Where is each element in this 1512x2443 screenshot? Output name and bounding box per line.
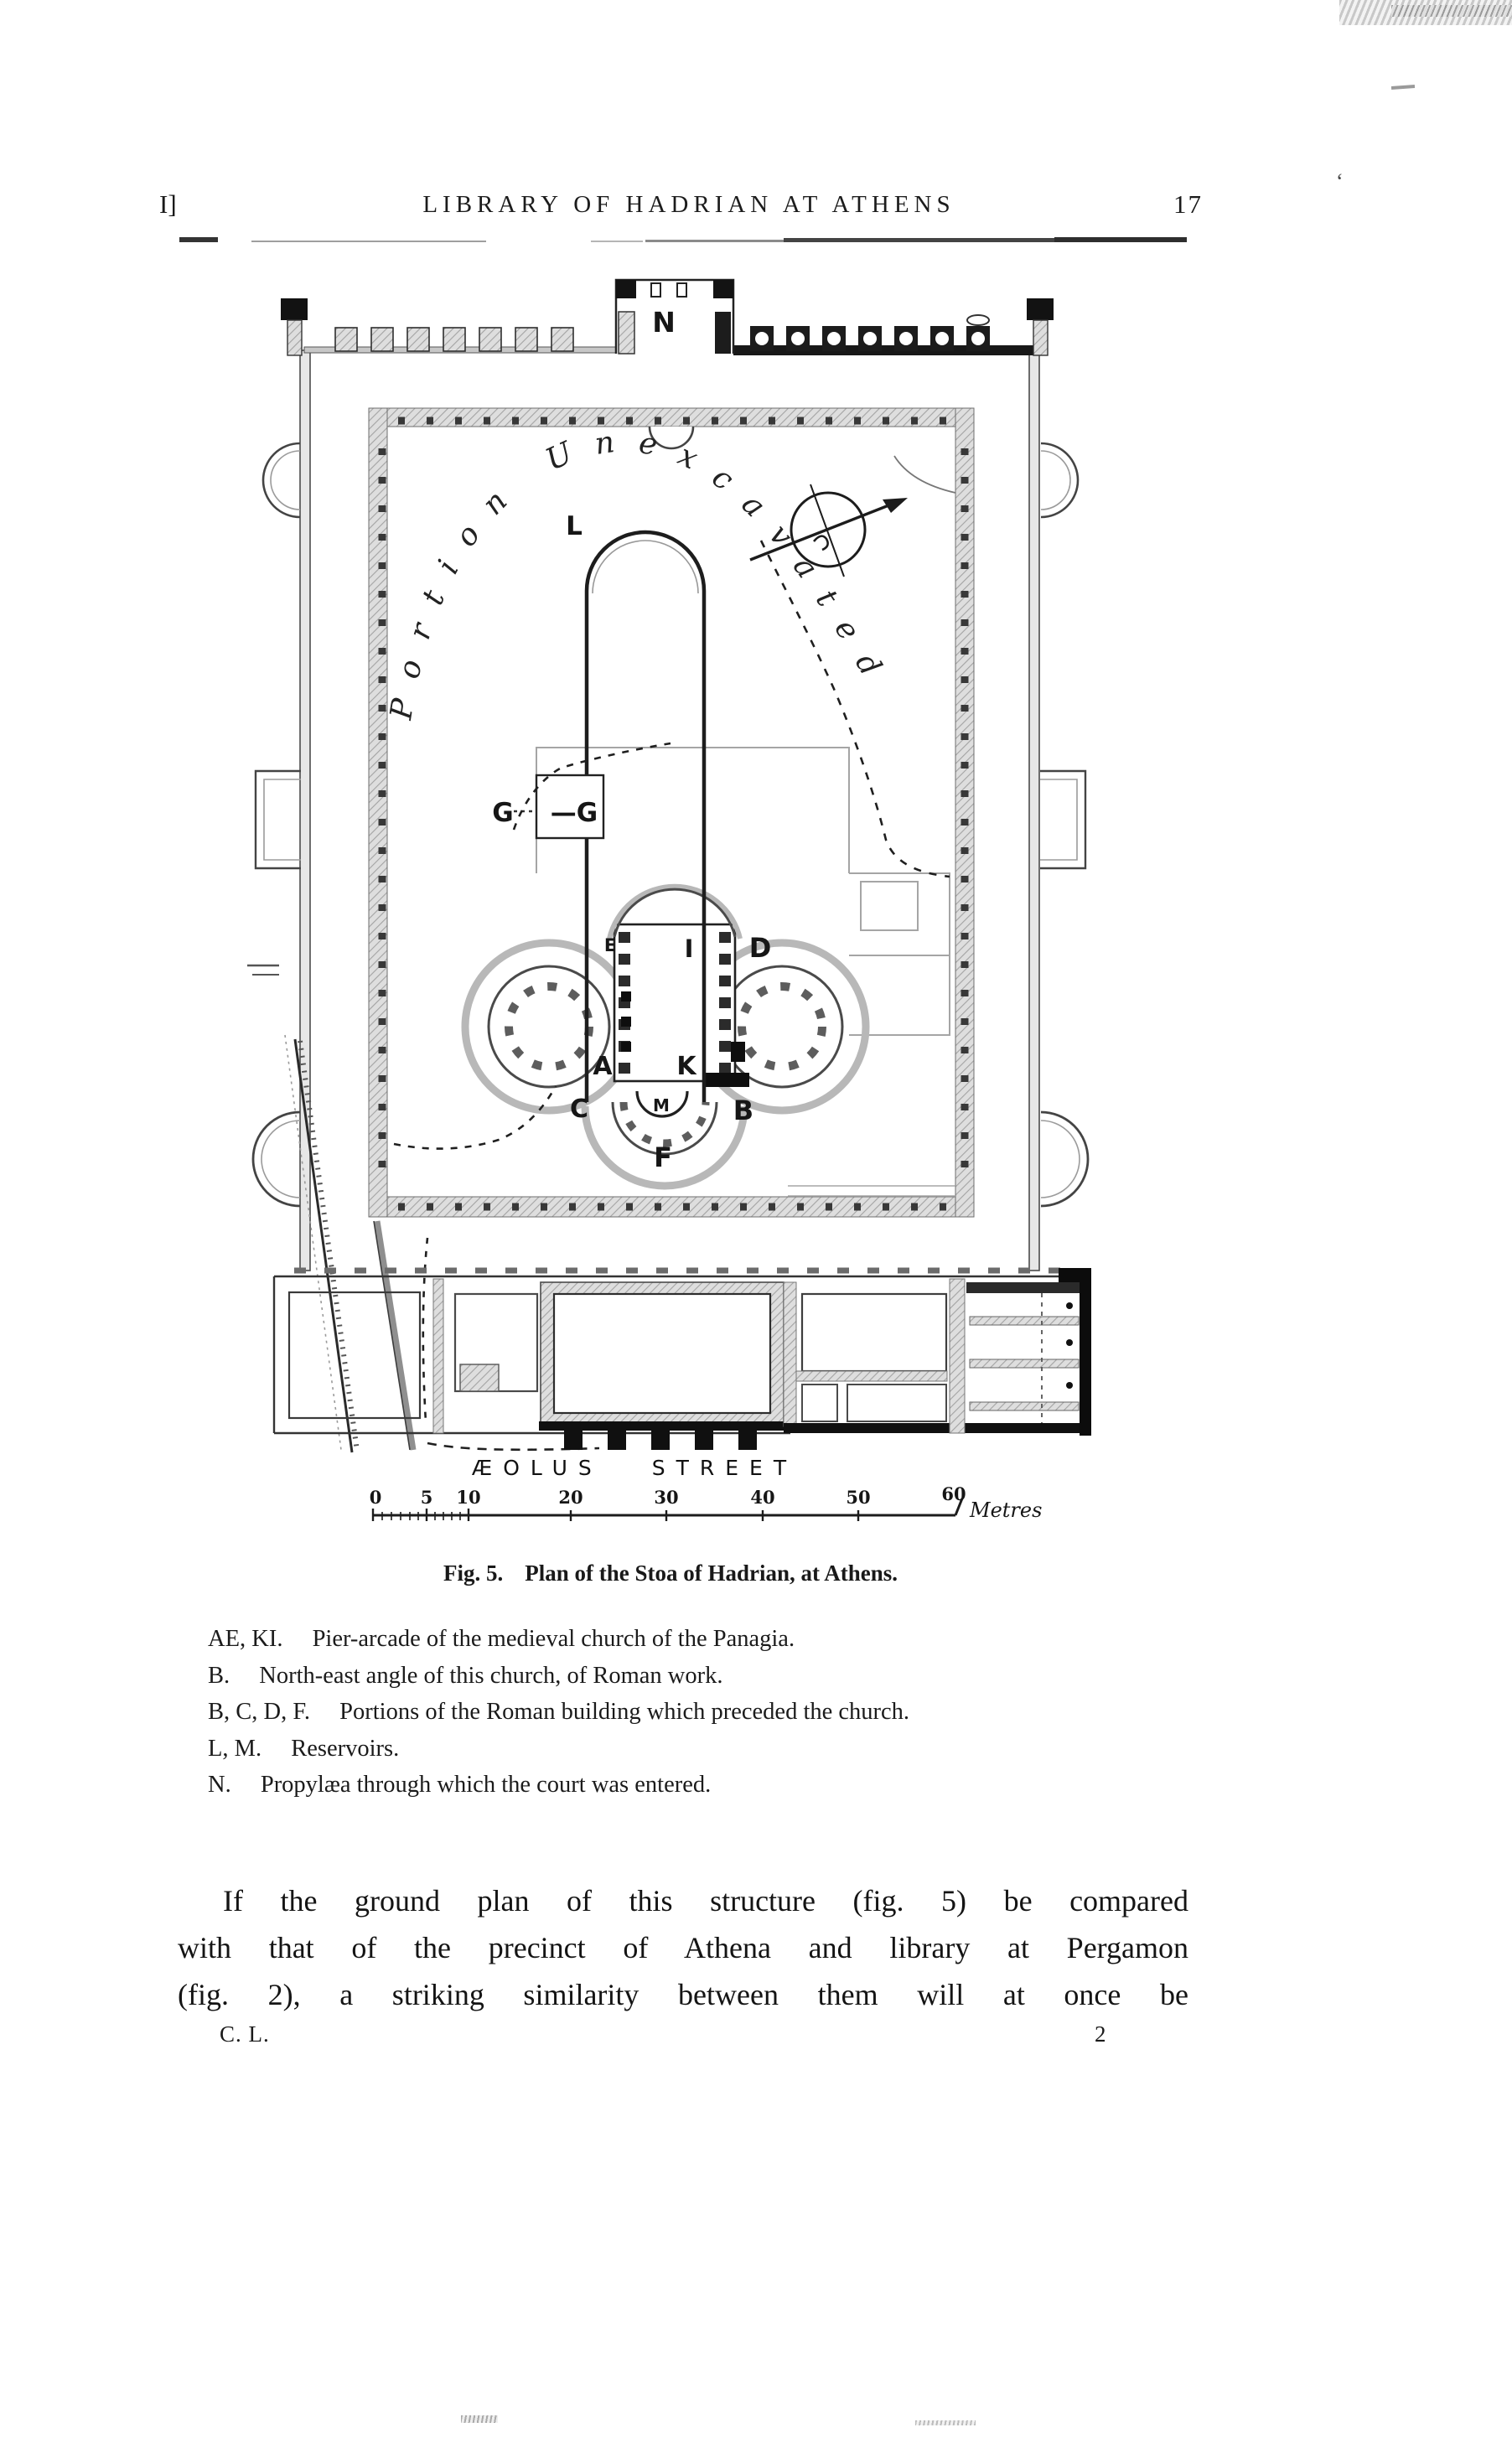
- header-rule: [251, 241, 486, 242]
- body-line: with that of the precinct of Athena and …: [178, 1924, 1188, 1971]
- scale-tick: 0: [370, 1487, 382, 1508]
- page-number: 17: [1173, 189, 1203, 220]
- scale-tick: 10: [456, 1487, 480, 1508]
- header-rule: [179, 237, 218, 242]
- body-paragraph: If the ground plan of this structure (fi…: [178, 1877, 1188, 2018]
- scale-tick: 5: [421, 1487, 433, 1508]
- header-rule: [591, 241, 643, 242]
- floor-plan-figure: Portion Unexcavated N L G —G E I D A K C…: [247, 277, 1094, 1559]
- legend-key: B.: [208, 1658, 230, 1695]
- body-line: If the ground plan of this structure (fi…: [178, 1877, 1188, 1924]
- figure-legend: AE, KI. Pier-arcade of the medieval chur…: [208, 1621, 1172, 1804]
- legend-item: N. Propylæa through which the court was …: [208, 1767, 1172, 1804]
- label-n: N: [652, 306, 676, 339]
- legend-item: L, M. Reservoirs.: [208, 1731, 1172, 1768]
- legend-desc: Reservoirs.: [291, 1736, 399, 1762]
- label-a: A: [593, 1052, 613, 1081]
- legend-desc: North-east angle of this church, of Roma…: [259, 1663, 722, 1689]
- signature-mark: C. L.: [220, 2021, 270, 2047]
- legend-key: AE, KI.: [208, 1621, 282, 1658]
- scan-mark: [1391, 85, 1415, 90]
- legend-key: B, C, D, F.: [208, 1694, 310, 1731]
- legend-item: B, C, D, F. Portions of the Roman buildi…: [208, 1694, 1172, 1731]
- label-e: E: [604, 935, 616, 955]
- figure-caption-text: Plan of the Stoa of Hadrian, at Athens.: [525, 1561, 898, 1586]
- scale-tick: 60: [941, 1483, 966, 1504]
- label-c: C: [570, 1095, 588, 1124]
- label-i: I: [685, 934, 694, 963]
- scale-unit: Metres: [969, 1498, 1042, 1522]
- label-d: D: [749, 932, 772, 964]
- section-marker: I]: [159, 189, 177, 220]
- legend-key: L, M.: [208, 1731, 261, 1768]
- scan-smudge: [915, 2420, 976, 2425]
- label-b: B: [733, 1095, 753, 1126]
- scale-tick: 30: [654, 1487, 678, 1508]
- legend-key: N.: [208, 1767, 231, 1804]
- scale-tick: 50: [846, 1487, 870, 1508]
- label-k: K: [676, 1052, 697, 1081]
- label-m: M: [653, 1095, 670, 1115]
- label-g-left: G: [492, 798, 513, 828]
- legend-desc: Propylæa through which the court was ent…: [261, 1772, 711, 1798]
- legend-desc: Pier-arcade of the medieval church of th…: [313, 1626, 795, 1652]
- northeast-angle: [704, 1073, 749, 1087]
- body-line: (fig. 2), a striking similarity between …: [178, 1971, 1188, 2018]
- scan-mark: ‘: [1336, 169, 1344, 194]
- scan-smudge: [461, 2415, 498, 2423]
- label-f: F: [654, 1141, 672, 1173]
- label-g-right: —G: [551, 798, 598, 828]
- header-rule: [1054, 237, 1187, 242]
- scale-tick: 20: [558, 1487, 583, 1508]
- street-label: ÆOLUS STREET: [472, 1456, 797, 1480]
- header-rule: [784, 238, 1060, 242]
- scale-bar: 0 5 10 20 30 40 50 60 Metres: [370, 1483, 1043, 1522]
- sheet-number: 2: [1095, 2021, 1106, 2047]
- book-page: I] LIBRARY OF HADRIAN AT ATHENS 17 ‘: [0, 0, 1512, 2443]
- figure-caption-label: Fig. 5.: [443, 1561, 503, 1586]
- church-nave: [614, 924, 735, 1081]
- legend-item: AE, KI. Pier-arcade of the medieval chur…: [208, 1621, 1172, 1658]
- label-l: L: [566, 511, 583, 541]
- legend-item: B. North-east angle of this church, of R…: [208, 1658, 1172, 1695]
- legend-desc: Portions of the Roman building which pre…: [339, 1699, 909, 1725]
- scan-smudge: [1391, 5, 1512, 17]
- scale-tick: 40: [750, 1487, 774, 1508]
- running-title: LIBRARY OF HADRIAN AT ATHENS: [268, 191, 1110, 219]
- unexcavated-note: Portion Unexcavated: [384, 425, 888, 722]
- outer-walls: [300, 350, 1039, 1271]
- figure-caption: Fig. 5.Plan of the Stoa of Hadrian, at A…: [247, 1561, 1094, 1586]
